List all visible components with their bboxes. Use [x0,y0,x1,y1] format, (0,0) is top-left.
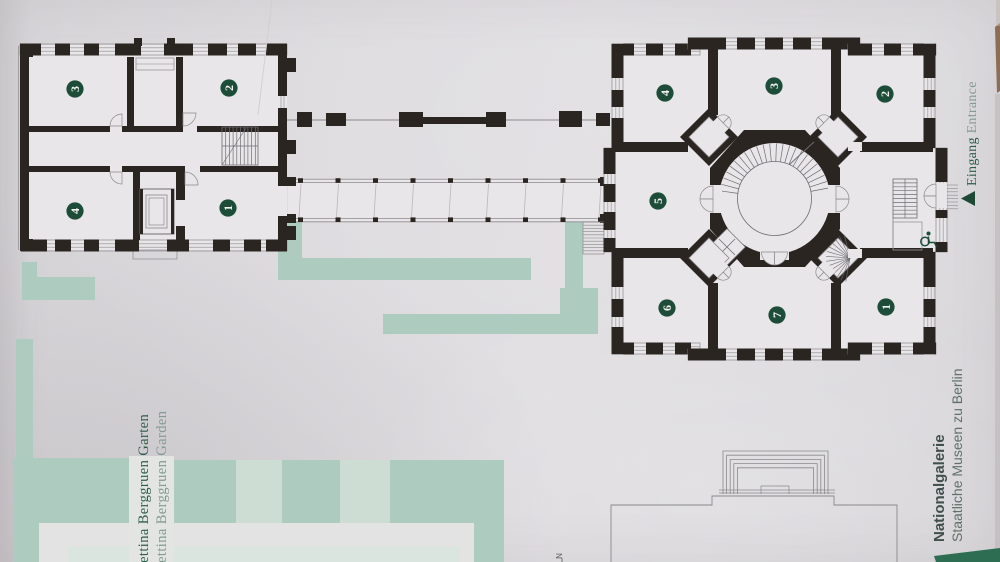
svg-text:7: 7 [770,312,784,318]
svg-text:4: 4 [658,90,672,96]
svg-text:Bettina Berggruen Garten: Bettina Berggruen Garten [136,414,152,562]
svg-text:Nationalgalerie: Nationalgalerie [931,434,948,542]
svg-text:N: N [555,553,564,559]
svg-text:2: 2 [878,91,892,97]
svg-text:1: 1 [879,304,893,310]
svg-text:Eingang Entrance: Eingang Entrance [965,81,980,186]
svg-text:3: 3 [767,83,781,89]
svg-text:2: 2 [222,85,236,91]
svg-text:6: 6 [660,305,674,311]
svg-text:4: 4 [68,208,82,214]
svg-text:Staatliche Museen zu Berlin: Staatliche Museen zu Berlin [949,368,965,542]
svg-text:3: 3 [68,86,82,92]
svg-text:5: 5 [651,198,665,204]
svg-text:Bettina Berggruen Garden: Bettina Berggruen Garden [154,410,170,562]
svg-text:1: 1 [221,205,235,211]
